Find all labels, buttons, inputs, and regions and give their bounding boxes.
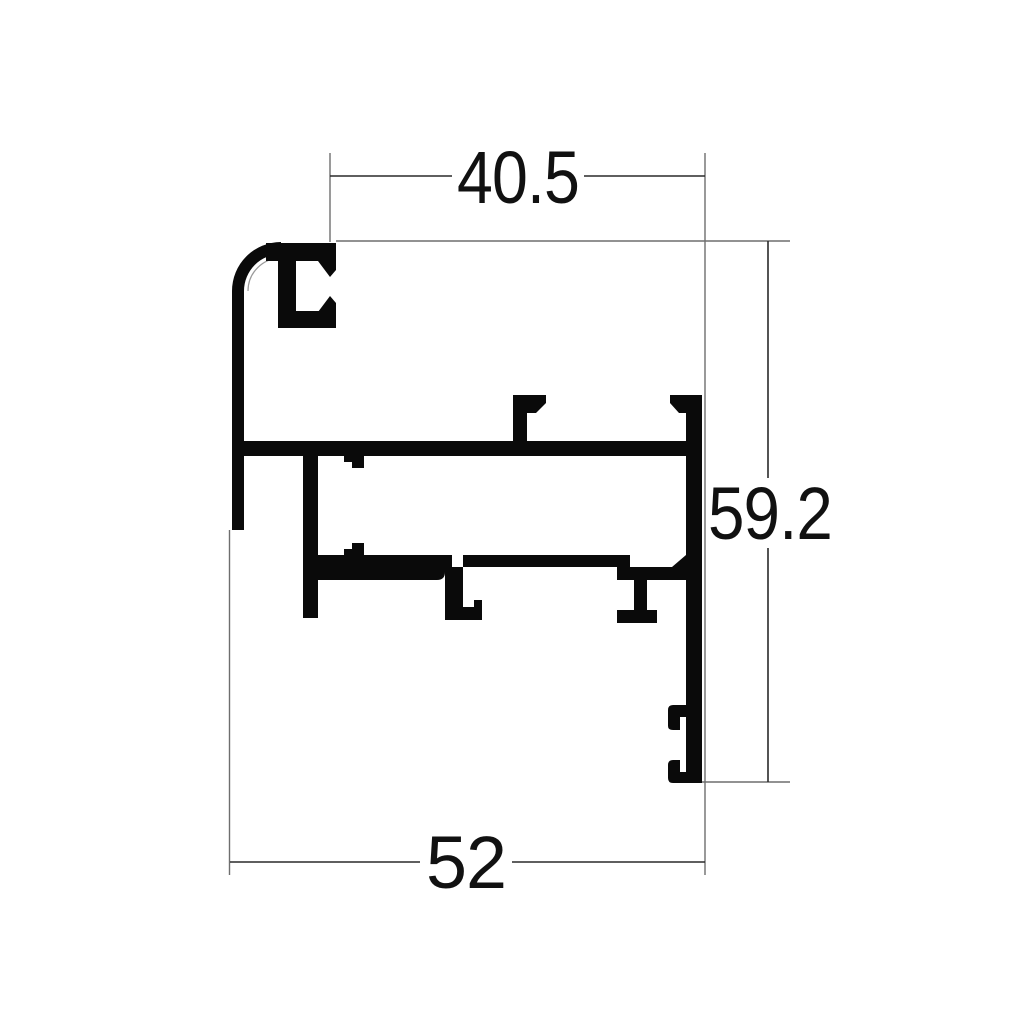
profile-channel-bottom-tooth: [318, 296, 336, 312]
profile-bottom-bar-lower-right: [617, 567, 686, 580]
dim-label-side-height: 59.2: [708, 472, 832, 555]
profile-left-leg: [303, 456, 318, 618]
profile-hook-upper: [344, 456, 364, 468]
dim-label-bottom-width: 52: [426, 821, 506, 904]
profile-corner-and-left-wall: [232, 242, 281, 530]
profile-bottom-channel-lower-hook: [668, 760, 686, 783]
profile-bottom-bar-upper-right: [463, 555, 630, 567]
profile-glazing-hook: [513, 395, 546, 441]
dimension-labels: 40.5 59.2 52: [426, 136, 832, 904]
dim-label-top-width: 40.5: [457, 136, 579, 219]
profile-channel-top-tooth: [318, 261, 336, 277]
profile-channel-top-bar: [266, 243, 336, 261]
profile-bottom-bar-lower-left: [303, 567, 445, 580]
profile-bottom-bar-upper-left: [318, 555, 452, 567]
profile-down-hook-left-foot: [463, 600, 482, 620]
profile-web: [244, 441, 702, 456]
profile-right-wall-lip: [670, 395, 686, 413]
profile-down-hook-left-stem: [445, 567, 463, 620]
drawing-canvas: 40.5 59.2 52: [0, 0, 1024, 1024]
profile-drawing: 40.5 59.2 52: [0, 0, 1024, 1024]
profile-bottom-channel-upper-hook: [668, 705, 686, 730]
profile-down-hook-right-foot: [617, 610, 657, 623]
profile-channel-spine: [278, 255, 296, 316]
profile-right-wall: [686, 395, 702, 783]
profile-channel-bottom-bar: [278, 311, 336, 328]
profile-geometry: [232, 242, 702, 783]
profile-bottom-bar-bevel: [672, 555, 686, 567]
profile-hook-lower: [344, 543, 364, 555]
